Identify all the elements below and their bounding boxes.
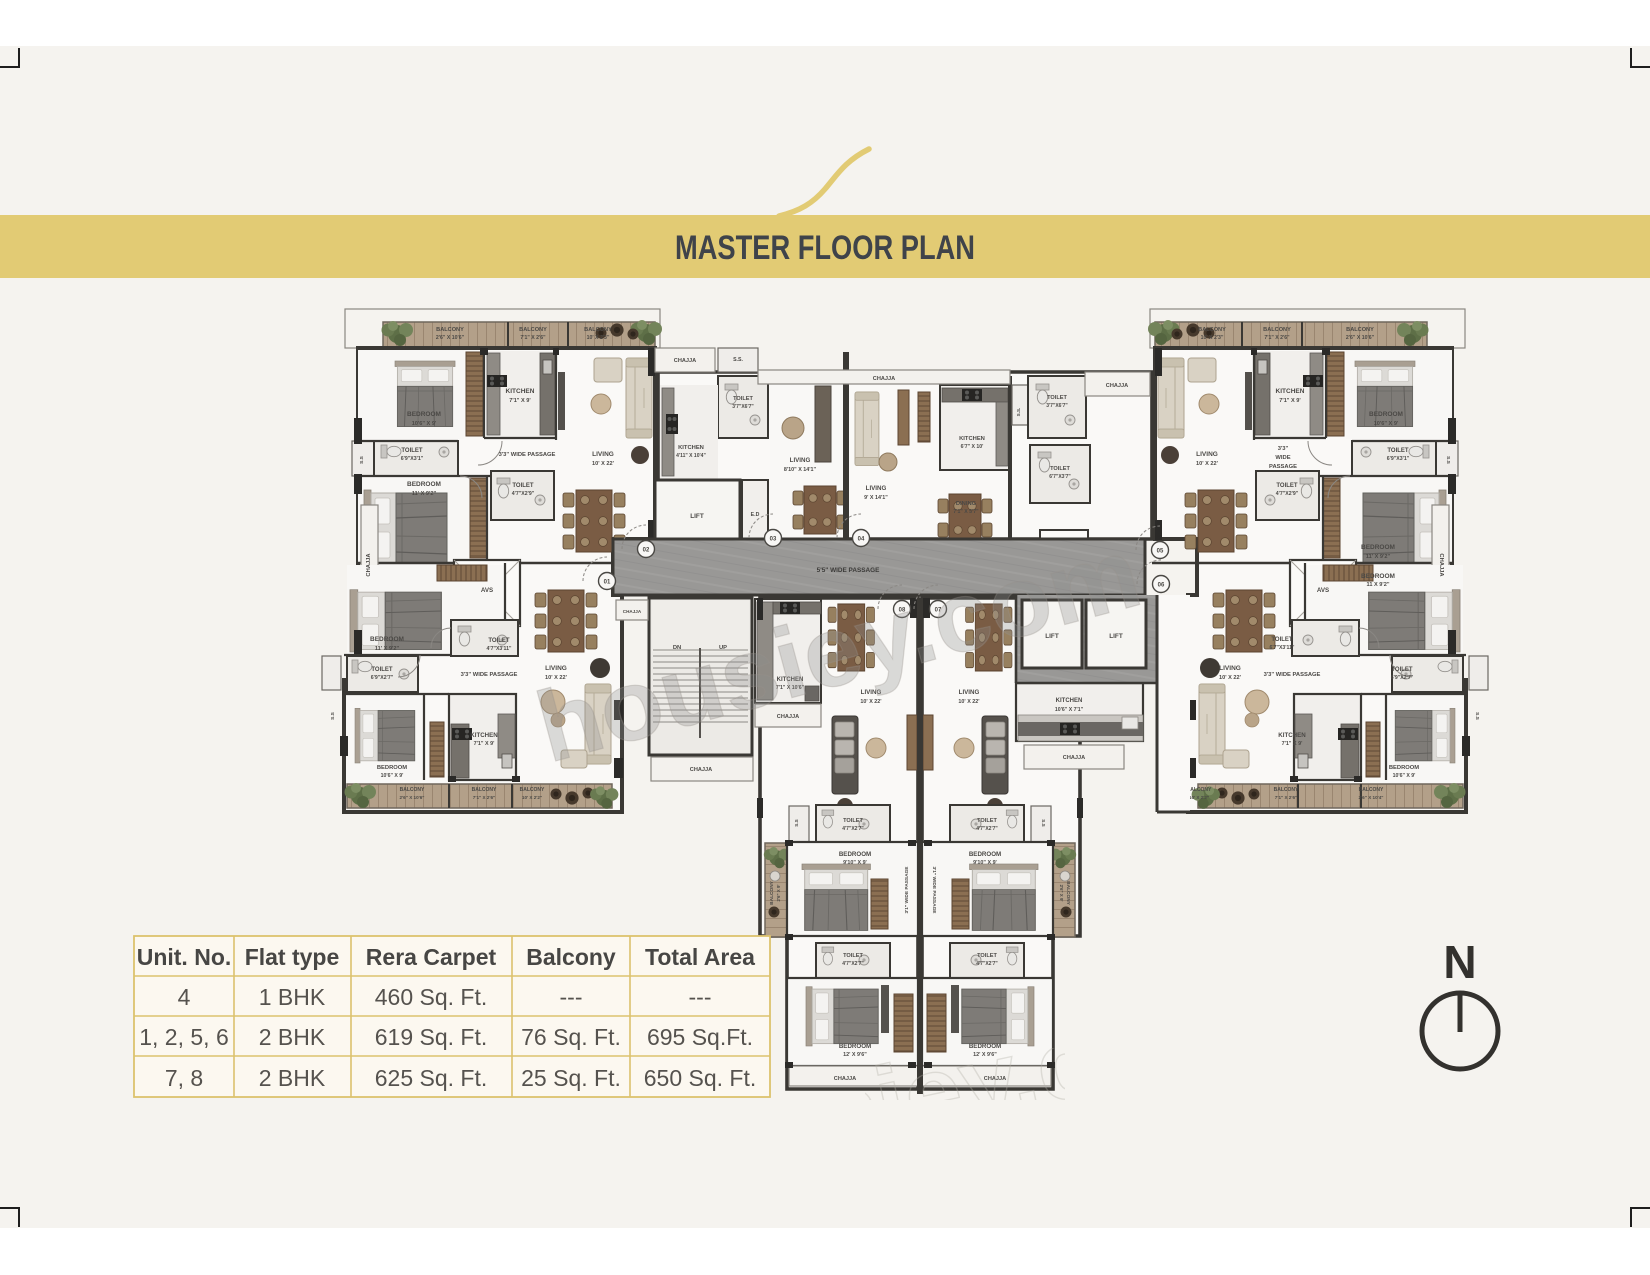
svg-text:TOILET: TOILET — [1387, 448, 1409, 454]
svg-text:BALCONY: BALCONY — [769, 880, 775, 905]
svg-text:10' X 22': 10' X 22' — [592, 461, 615, 467]
svg-text:25 Sq. Ft.: 25 Sq. Ft. — [521, 1065, 621, 1091]
svg-text:9'10" X 9': 9'10" X 9' — [973, 860, 997, 866]
svg-text:KITCHEN: KITCHEN — [678, 445, 704, 451]
svg-text:4'7"X3'11": 4'7"X3'11" — [487, 646, 513, 652]
svg-text:WIDE: WIDE — [1275, 455, 1290, 461]
svg-text:3'3" WIDE PASSAGE: 3'3" WIDE PASSAGE — [461, 672, 518, 678]
svg-text:TOILET: TOILET — [512, 483, 534, 489]
svg-text:TOILET: TOILET — [1391, 667, 1413, 673]
svg-text:BALCONY: BALCONY — [436, 327, 464, 333]
svg-text:LIVING: LIVING — [866, 485, 887, 492]
svg-text:CHAJJA: CHAJJA — [1106, 383, 1128, 389]
svg-text:PASSAGE: PASSAGE — [1269, 464, 1297, 470]
svg-text:TOILET: TOILET — [1050, 466, 1070, 472]
svg-text:BEDROOM: BEDROOM — [407, 481, 441, 488]
svg-text:10'6" X 9': 10'6" X 9' — [412, 421, 437, 427]
svg-text:11 X 9'2": 11 X 9'2" — [1367, 582, 1390, 588]
svg-text:11' X 9'2": 11' X 9'2" — [375, 646, 400, 652]
svg-text:BEDROOM: BEDROOM — [1361, 544, 1395, 551]
svg-text:LIVING: LIVING — [1196, 451, 1218, 458]
svg-text:06: 06 — [1158, 582, 1165, 588]
svg-text:10' X 22': 10' X 22' — [1219, 675, 1242, 681]
svg-text:7'1" X 9': 7'1" X 9' — [1282, 741, 1303, 747]
svg-text:BEDROOM: BEDROOM — [1389, 765, 1419, 771]
svg-text:BEDROOM: BEDROOM — [1361, 573, 1395, 580]
svg-text:7'1" X 2'6": 7'1" X 2'6" — [473, 795, 495, 800]
svg-text:4'11" X 10'4": 4'11" X 10'4" — [676, 453, 706, 459]
svg-text:TOILET: TOILET — [488, 638, 510, 644]
svg-text:7'1" X 2'6": 7'1" X 2'6" — [1275, 795, 1297, 800]
svg-text:TOILET: TOILET — [733, 396, 753, 402]
svg-text:BALCONY: BALCONY — [472, 787, 497, 793]
svg-text:3'7"X6'7": 3'7"X6'7" — [1046, 403, 1068, 409]
svg-text:KITCHEN: KITCHEN — [1278, 732, 1306, 739]
svg-text:S.S.: S.S. — [733, 357, 743, 363]
svg-text:Flat type: Flat type — [245, 944, 340, 970]
svg-text:BEDROOM: BEDROOM — [407, 411, 441, 418]
svg-text:8'10" X 14'1": 8'10" X 14'1" — [784, 467, 817, 473]
svg-text:TOILET: TOILET — [1271, 637, 1293, 643]
svg-text:4: 4 — [178, 984, 191, 1010]
svg-text:CHAJJA: CHAJJA — [690, 767, 712, 773]
svg-text:6'7" X 10': 6'7" X 10' — [961, 444, 984, 450]
svg-text:E.D: E.D — [751, 512, 760, 518]
svg-text:4'7"X2'7": 4'7"X2'7" — [976, 826, 998, 832]
svg-text:BALCONY: BALCONY — [1263, 327, 1291, 333]
svg-text:TOILET: TOILET — [977, 953, 997, 959]
svg-text:650 Sq. Ft.: 650 Sq. Ft. — [644, 1065, 757, 1091]
svg-text:BALCONY: BALCONY — [400, 787, 425, 793]
svg-text:10' X 22': 10' X 22' — [1196, 461, 1219, 467]
svg-text:02: 02 — [643, 547, 650, 553]
svg-text:10' X 22': 10' X 22' — [958, 699, 979, 705]
svg-text:BEDROOM: BEDROOM — [1369, 411, 1403, 418]
svg-text:619 Sq. Ft.: 619 Sq. Ft. — [375, 1024, 488, 1050]
svg-text:10'6" X 9': 10'6" X 9' — [1374, 421, 1399, 427]
svg-text:KITCHEN: KITCHEN — [959, 436, 985, 442]
svg-text:03: 03 — [770, 536, 777, 542]
svg-text:7'1" X 5'7": 7'1" X 5'7" — [953, 509, 979, 515]
svg-text:6'7"X3'7": 6'7"X3'7" — [1049, 474, 1071, 480]
svg-text:LIFT: LIFT — [690, 513, 704, 520]
svg-text:2 BHK: 2 BHK — [259, 1065, 326, 1091]
svg-text:3'3" WIDE PASSAGE: 3'3" WIDE PASSAGE — [499, 452, 556, 458]
svg-text:S.S: S.S — [359, 455, 365, 464]
svg-text:---: --- — [560, 984, 583, 1010]
svg-text:7'1" X 9': 7'1" X 9' — [474, 741, 495, 747]
svg-text:7'1" X 9': 7'1" X 9' — [1279, 398, 1301, 404]
svg-text:AVS: AVS — [481, 587, 493, 594]
svg-text:BALCONY: BALCONY — [520, 787, 545, 793]
svg-text:10'6" X 9': 10'6" X 9' — [381, 773, 404, 779]
svg-text:BALCONY: BALCONY — [1359, 787, 1384, 793]
svg-text:2 BHK: 2 BHK — [259, 1024, 326, 1050]
svg-text:KITCHEN: KITCHEN — [506, 388, 535, 395]
svg-text:BALCONY: BALCONY — [1065, 881, 1071, 906]
svg-text:S.S.: S.S. — [1016, 408, 1021, 417]
svg-text:4'7"X2'9": 4'7"X2'9" — [512, 491, 535, 497]
svg-text:---: --- — [689, 984, 712, 1010]
svg-text:2'6" X 10'6": 2'6" X 10'6" — [436, 335, 465, 341]
svg-text:LIVING: LIVING — [790, 457, 811, 464]
svg-text:N: N — [1443, 936, 1476, 988]
svg-text:2'6" X 10'6": 2'6" X 10'6" — [1346, 335, 1375, 341]
svg-text:S.S: S.S — [1041, 819, 1046, 826]
svg-text:BALCONY: BALCONY — [519, 327, 547, 333]
svg-text:S.S: S.S — [794, 819, 799, 826]
svg-text:BEDROOM: BEDROOM — [377, 765, 407, 771]
svg-text:CHAJJA: CHAJJA — [623, 609, 642, 614]
svg-text:2'6" X 9': 2'6" X 9' — [776, 885, 781, 902]
svg-text:TOILET: TOILET — [843, 953, 863, 959]
svg-text:2'6" X 10'6": 2'6" X 10'6" — [400, 795, 425, 800]
svg-text:3'3": 3'3" — [1278, 446, 1289, 452]
svg-text:2'6" X 9': 2'6" X 9' — [1059, 885, 1064, 902]
svg-text:4'7"X2'7": 4'7"X2'7" — [842, 826, 864, 832]
svg-text:S.S: S.S — [330, 711, 336, 720]
svg-text:Rera Carpet: Rera Carpet — [366, 944, 497, 970]
svg-text:AVS: AVS — [1317, 587, 1329, 594]
svg-text:6'9"X3'1": 6'9"X3'1" — [401, 456, 424, 462]
svg-text:05: 05 — [1157, 548, 1164, 554]
svg-text:CHAJJA: CHAJJA — [1438, 553, 1444, 577]
svg-text:1 BHK: 1 BHK — [259, 984, 326, 1010]
svg-text:3'3" WIDE PASSAGE: 3'3" WIDE PASSAGE — [1264, 672, 1321, 678]
svg-text:CHAJJA: CHAJJA — [834, 1076, 856, 1082]
svg-text:MASTER FLOOR PLAN: MASTER FLOOR PLAN — [675, 229, 975, 267]
svg-text:BEDROOM: BEDROOM — [969, 851, 1001, 858]
svg-text:460 Sq. Ft.: 460 Sq. Ft. — [375, 984, 488, 1010]
svg-text:BALCONY: BALCONY — [1274, 787, 1299, 793]
svg-text:BEDROOM: BEDROOM — [370, 636, 404, 643]
svg-text:LIVING: LIVING — [592, 451, 614, 458]
svg-text:2'6" X 10'4": 2'6" X 10'4" — [1359, 795, 1384, 800]
svg-text:KITCHEN: KITCHEN — [1276, 388, 1305, 395]
svg-text:TOILET: TOILET — [1276, 483, 1298, 489]
svg-text:S.S: S.S — [1445, 456, 1451, 465]
svg-text:6'7"X3'11": 6'7"X3'11" — [1270, 645, 1296, 651]
svg-text:Unit. No.: Unit. No. — [137, 944, 232, 970]
svg-text:76 Sq. Ft.: 76 Sq. Ft. — [521, 1024, 621, 1050]
svg-text:695 Sq.Ft.: 695 Sq.Ft. — [647, 1024, 753, 1050]
svg-text:BALCONY: BALCONY — [1198, 327, 1226, 333]
svg-text:BALCONY: BALCONY — [1187, 787, 1212, 793]
svg-text:12' X 9'6": 12' X 9'6" — [843, 1052, 867, 1058]
svg-text:6'9"X2'7": 6'9"X2'7" — [371, 675, 394, 681]
svg-text:10' X 2'3": 10' X 2'3" — [1201, 335, 1224, 341]
svg-text:CHAJJA: CHAJJA — [1063, 755, 1085, 761]
svg-text:BEDROOM: BEDROOM — [839, 851, 871, 858]
svg-text:6'9"X3'1": 6'9"X3'1" — [1387, 456, 1410, 462]
svg-text:625 Sq. Ft.: 625 Sq. Ft. — [375, 1065, 488, 1091]
svg-text:01: 01 — [604, 579, 611, 585]
svg-text:7'1" X 9': 7'1" X 9' — [509, 398, 531, 404]
svg-text:TOILET: TOILET — [1047, 395, 1067, 401]
svg-text:TOILET: TOILET — [371, 667, 393, 673]
svg-text:BALCONY: BALCONY — [584, 327, 612, 333]
svg-text:10'6" X 9': 10'6" X 9' — [1393, 773, 1416, 779]
svg-text:TOILET: TOILET — [977, 818, 997, 824]
svg-text:LIVING: LIVING — [959, 689, 980, 696]
svg-text:3'1" WIDE PASSAGE: 3'1" WIDE PASSAGE — [931, 866, 937, 914]
svg-text:04: 04 — [858, 536, 865, 542]
svg-text:BALCONY: BALCONY — [1346, 327, 1374, 333]
svg-text:10' X 2'2": 10' X 2'2" — [522, 795, 542, 800]
svg-text:CHAJJA: CHAJJA — [873, 376, 895, 382]
svg-text:KITCHEN: KITCHEN — [1056, 698, 1083, 704]
svg-text:10' X 2'2": 10' X 2'2" — [1189, 795, 1209, 800]
svg-text:11' X 9'2": 11' X 9'2" — [1366, 554, 1391, 560]
svg-text:7, 8: 7, 8 — [165, 1065, 203, 1091]
svg-text:5'5" WIDE PASSAGE: 5'5" WIDE PASSAGE — [817, 567, 880, 574]
svg-text:CHAJJA: CHAJJA — [674, 358, 696, 364]
svg-text:6'9"X2'7": 6'9"X2'7" — [1391, 675, 1414, 681]
svg-text:3'1" WIDE PASSAGE: 3'1" WIDE PASSAGE — [904, 866, 910, 914]
svg-text:Total Area: Total Area — [645, 944, 755, 970]
svg-text:DINING: DINING — [956, 501, 977, 507]
svg-text:4'7"X2'7": 4'7"X2'7" — [976, 961, 998, 967]
svg-text:7'1" X 2'6": 7'1" X 2'6" — [520, 335, 546, 341]
svg-text:S.S: S.S — [1474, 712, 1480, 721]
svg-text:CHAJJA: CHAJJA — [366, 553, 372, 577]
svg-text:3'7"X6'7": 3'7"X6'7" — [732, 404, 754, 410]
svg-text:4'7"X2'7": 4'7"X2'7" — [842, 961, 864, 967]
svg-text:9'10" X 9': 9'10" X 9' — [843, 860, 867, 866]
svg-text:10' X 2'3": 10' X 2'3" — [587, 335, 610, 341]
svg-text:Balcony: Balcony — [526, 944, 616, 970]
svg-text:LIVING: LIVING — [1219, 665, 1241, 672]
svg-text:TOILET: TOILET — [843, 818, 863, 824]
svg-text:KITCHEN: KITCHEN — [470, 732, 498, 739]
svg-text:7'1" X 2'6": 7'1" X 2'6" — [1264, 335, 1290, 341]
svg-text:4'7"X2'9": 4'7"X2'9" — [1276, 491, 1299, 497]
svg-text:10'6" X 7'1": 10'6" X 7'1" — [1055, 707, 1084, 713]
svg-text:TOILET: TOILET — [401, 448, 423, 454]
svg-text:11' X 9'2": 11' X 9'2" — [412, 491, 437, 497]
svg-text:1, 2, 5, 6: 1, 2, 5, 6 — [139, 1024, 229, 1050]
svg-text:9' X 14'1": 9' X 14'1" — [864, 495, 888, 501]
